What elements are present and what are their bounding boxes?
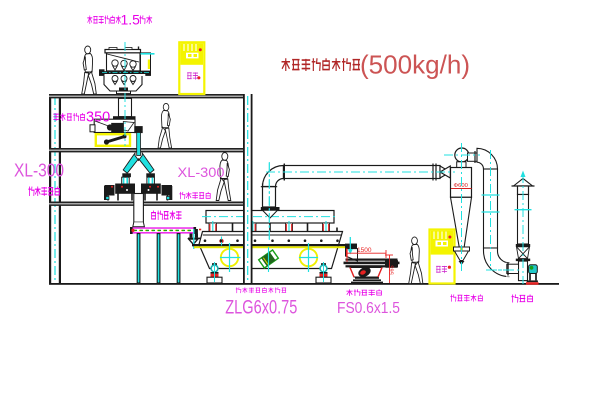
svg-text:XL-300: XL-300 [178,165,225,180]
svg-text:1.5: 1.5 [121,12,141,28]
svg-text:350: 350 [86,110,110,126]
svg-text:1500: 1500 [357,247,372,254]
svg-text:XL-300: XL-300 [14,160,64,181]
svg-text:ZLG6x0.75: ZLG6x0.75 [225,298,297,319]
svg-text:FS0.6x1.5: FS0.6x1.5 [337,300,400,317]
svg-text:(500kg/h): (500kg/h) [360,50,470,80]
svg-text:565: 565 [390,265,396,274]
